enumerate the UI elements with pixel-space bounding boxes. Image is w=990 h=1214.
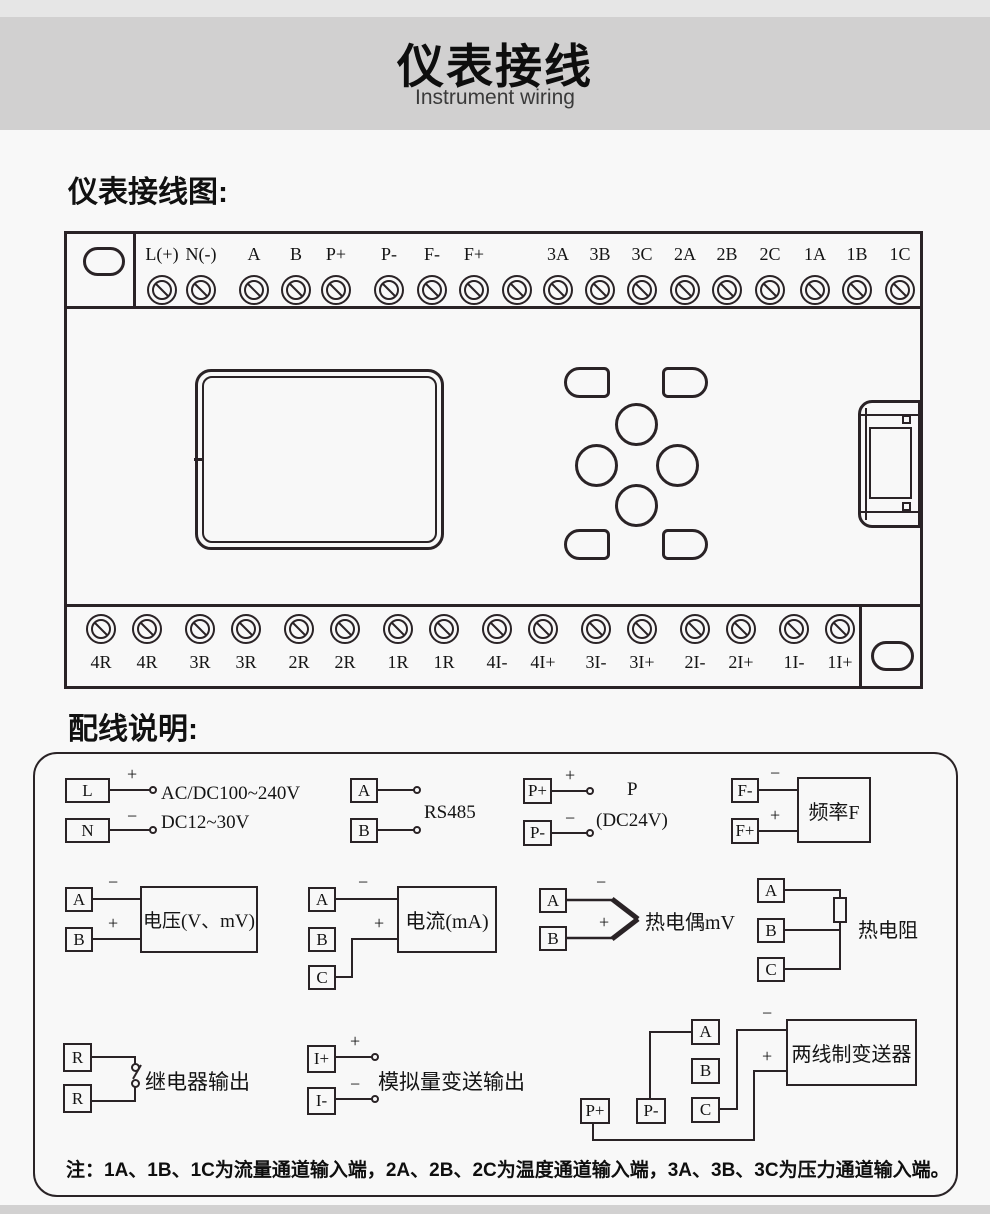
terminal-box-B: B	[539, 926, 567, 951]
wire	[753, 1070, 755, 1141]
screw-terminal-icon	[383, 614, 413, 644]
top-terminal-label: 3C	[631, 244, 652, 265]
keypad-circle-left	[575, 444, 618, 487]
polarity-minus: −	[770, 763, 780, 784]
mount-hole-top-icon	[83, 247, 125, 276]
wire	[378, 829, 416, 831]
wiring-diagram-heading: 仪表接线图:	[68, 167, 228, 211]
top-terminal-label: B	[290, 244, 302, 265]
terminal-box-P-minus: P-	[636, 1098, 666, 1124]
wiring-notes-heading: 配线说明:	[68, 704, 198, 748]
polarity-minus: −	[350, 1074, 360, 1095]
power-range-line1: AC/DC100~240V	[161, 783, 300, 805]
bottom-right-cell-divider	[859, 607, 862, 686]
bottom-terminal-label: 4R	[90, 652, 111, 673]
voltage-box: 电压(V、mV)	[140, 886, 258, 953]
top-terminal-label: 1C	[889, 244, 910, 265]
wire	[649, 1031, 691, 1033]
screw-terminal-icon	[680, 614, 710, 644]
analog-output-label: 模拟量变送输出	[378, 1066, 525, 1096]
screw-terminal-icon	[284, 614, 314, 644]
bottom-terminal-label: 2I-	[685, 652, 706, 673]
screw-terminal-icon	[627, 614, 657, 644]
bottom-terminal-label: 4I+	[530, 652, 555, 673]
screw-terminal-icon	[842, 275, 872, 305]
screw-terminal-icon	[330, 614, 360, 644]
wire-end-dot	[586, 787, 594, 795]
top-terminal-label: P-	[381, 244, 397, 265]
screw-terminal-icon	[459, 275, 489, 305]
polarity-plus: +	[108, 913, 118, 934]
wire	[110, 789, 152, 791]
power-range-line2: DC12~30V	[161, 812, 249, 834]
relay-label: 继电器输出	[145, 1066, 250, 1096]
wire	[336, 1056, 374, 1058]
terminal-box-C: C	[691, 1097, 720, 1123]
screw-terminal-icon	[528, 614, 558, 644]
screw-terminal-icon	[581, 614, 611, 644]
terminal-box-N: N	[65, 818, 110, 843]
screw-terminal-icon	[231, 614, 261, 644]
screw-terminal-icon	[147, 275, 177, 305]
polarity-minus: −	[108, 872, 118, 893]
wire	[351, 938, 353, 978]
screw-terminal-icon	[239, 275, 269, 305]
top-terminal-label: N(-)	[186, 244, 217, 265]
terminal-box-F-plus: F+	[731, 818, 759, 844]
wire-end-dot	[371, 1095, 379, 1103]
screw-terminal-icon	[755, 275, 785, 305]
top-left-cell-divider	[133, 231, 136, 309]
wire	[134, 1087, 136, 1102]
screw-terminal-icon	[482, 614, 512, 644]
wire	[592, 1124, 594, 1141]
keypad-button-top-left	[564, 367, 610, 398]
top-strip-divider-line	[64, 306, 923, 309]
keypad-circle-right	[656, 444, 699, 487]
top-terminal-label: F+	[464, 244, 484, 265]
wire	[336, 1098, 374, 1100]
screw-terminal-icon	[726, 614, 756, 644]
top-terminal-label: L(+)	[145, 244, 178, 265]
screw-terminal-icon	[132, 614, 162, 644]
bottom-terminal-label: 1I-	[784, 652, 805, 673]
wiring-note: 注：1A、1B、1C为流量通道输入端，2A、2B、2C为温度通道输入端，3A、3…	[66, 1155, 946, 1182]
bottom-terminal-label: 2I+	[728, 652, 753, 673]
screw-terminal-icon	[185, 614, 215, 644]
wire	[552, 790, 589, 792]
polarity-plus: +	[374, 913, 384, 934]
screw-terminal-icon	[281, 275, 311, 305]
terminal-box-C: C	[757, 957, 785, 982]
wire	[93, 898, 140, 900]
thermocouple-label: 热电偶mV	[645, 906, 735, 935]
side-connector-tab-top	[902, 415, 911, 424]
wire	[110, 829, 152, 831]
terminal-box-B: B	[308, 927, 336, 952]
wire-end-dot	[413, 826, 421, 834]
keypad-circle-up	[615, 403, 658, 446]
terminal-box-R: R	[63, 1043, 92, 1072]
bottom-terminal-label: 1I+	[827, 652, 852, 673]
terminal-box-A: A	[757, 878, 785, 903]
terminal-box-A: A	[539, 888, 567, 913]
wire	[736, 1029, 738, 1110]
wire	[759, 830, 797, 832]
terminal-box-A: A	[65, 887, 93, 912]
top-terminal-label: 3A	[547, 244, 569, 265]
polarity-plus: +	[565, 765, 575, 786]
side-connector-socket	[869, 427, 912, 499]
polarity-plus: +	[127, 764, 137, 785]
wire	[785, 968, 841, 970]
screw-terminal-icon	[186, 275, 216, 305]
resistor-icon	[833, 897, 847, 923]
bottom-terminal-label: 3R	[189, 652, 210, 673]
bottom-terminal-label: 2R	[334, 652, 355, 673]
bottom-terminal-label: 1R	[433, 652, 454, 673]
polarity-minus: −	[358, 872, 368, 893]
wire-end-dot	[371, 1053, 379, 1061]
polarity-minus: −	[596, 872, 606, 893]
terminal-box-B: B	[350, 818, 378, 843]
mount-hole-bottom-icon	[871, 641, 914, 671]
terminal-box-P-minus: P-	[523, 820, 552, 846]
top-terminal-label: 3B	[589, 244, 610, 265]
p24-line2: (DC24V)	[596, 810, 668, 832]
transmitter-box: 两线制变送器	[786, 1019, 917, 1086]
bottom-terminal-label: 3R	[235, 652, 256, 673]
side-connector-bottom-line	[861, 511, 921, 513]
keypad-circle-down	[615, 484, 658, 527]
terminal-box-F-minus: F-	[731, 778, 759, 803]
wire-end-dot	[413, 786, 421, 794]
p24-line1: P	[627, 779, 638, 801]
top-gray-strip	[0, 0, 990, 17]
screw-terminal-icon	[627, 275, 657, 305]
terminal-box-P-plus: P+	[523, 778, 552, 804]
top-terminal-label: F-	[424, 244, 440, 265]
terminal-box-B: B	[757, 918, 785, 943]
screw-terminal-icon	[779, 614, 809, 644]
current-box: 电流(mA)	[397, 886, 497, 953]
screw-terminal-icon	[885, 275, 915, 305]
wire-end-dot	[149, 786, 157, 794]
polarity-plus: +	[762, 1046, 772, 1067]
screw-terminal-icon	[417, 275, 447, 305]
terminal-box-A: A	[308, 887, 336, 912]
screw-terminal-icon	[712, 275, 742, 305]
bottom-terminal-label: 3I+	[629, 652, 654, 673]
screw-terminal-icon	[543, 275, 573, 305]
top-terminal-label: 1B	[846, 244, 867, 265]
terminal-box-C: C	[308, 965, 336, 990]
display-screen-inner	[202, 376, 437, 543]
bottom-terminal-label: 2R	[288, 652, 309, 673]
top-terminal-label: 2B	[716, 244, 737, 265]
keypad-button-bottom-right	[662, 529, 708, 560]
screw-terminal-icon	[670, 275, 700, 305]
wire	[785, 929, 841, 931]
bottom-terminal-label: 3I-	[586, 652, 607, 673]
instrument-wiring-page: 仪表接线 Instrument wiring 仪表接线图: L(+) N(-) …	[0, 0, 990, 1214]
wire	[649, 1031, 651, 1098]
screw-terminal-icon	[374, 275, 404, 305]
page-subtitle: Instrument wiring	[0, 86, 990, 110]
wire	[336, 898, 397, 900]
display-side-notch	[194, 458, 203, 461]
wire	[351, 938, 397, 940]
wire	[592, 1139, 755, 1141]
terminal-box-P-plus: P+	[580, 1098, 610, 1124]
wire-end-dot	[586, 829, 594, 837]
top-terminal-label: P+	[326, 244, 346, 265]
wire-end-dot	[149, 826, 157, 834]
bottom-gray-strip	[0, 1205, 990, 1214]
screw-terminal-icon	[825, 614, 855, 644]
side-connector-edge-line	[865, 408, 867, 520]
bottom-terminal-label: 1R	[387, 652, 408, 673]
polarity-minus: −	[762, 1003, 772, 1024]
keypad-button-top-right	[662, 367, 708, 398]
wire	[753, 1070, 786, 1072]
top-terminal-label: 1A	[804, 244, 826, 265]
rtd-label: 热电阻	[858, 914, 918, 943]
wire	[92, 1056, 136, 1058]
wire	[378, 789, 416, 791]
screw-terminal-icon	[502, 275, 532, 305]
terminal-box-A: A	[691, 1019, 720, 1045]
keypad-button-bottom-left	[564, 529, 610, 560]
terminal-box-I-minus: I-	[307, 1087, 336, 1115]
wire	[736, 1029, 786, 1031]
polarity-plus: +	[770, 805, 780, 826]
screw-terminal-icon	[429, 614, 459, 644]
polarity-plus: +	[350, 1031, 360, 1052]
screw-terminal-icon	[86, 614, 116, 644]
screw-terminal-icon	[800, 275, 830, 305]
top-terminal-label: 2C	[759, 244, 780, 265]
polarity-minus: −	[565, 808, 575, 829]
wire	[92, 1100, 136, 1102]
wire	[785, 889, 841, 891]
screw-terminal-icon	[321, 275, 351, 305]
wire	[552, 832, 589, 834]
bottom-strip-divider-line	[64, 604, 923, 607]
terminal-box-A: A	[350, 778, 378, 803]
terminal-box-R: R	[63, 1084, 92, 1113]
frequency-box: 频率F	[797, 777, 871, 843]
polarity-minus: −	[127, 806, 137, 827]
terminal-box-I-plus: I+	[307, 1045, 336, 1073]
polarity-plus: +	[599, 912, 609, 933]
top-terminal-label: 2A	[674, 244, 696, 265]
side-connector-tab-bottom	[902, 502, 911, 511]
bottom-terminal-label: 4R	[136, 652, 157, 673]
terminal-box-B: B	[691, 1058, 720, 1084]
rs485-label: RS485	[424, 802, 476, 824]
terminal-box-L: L	[65, 778, 110, 803]
screw-terminal-icon	[585, 275, 615, 305]
top-terminal-label: A	[248, 244, 261, 265]
terminal-box-B: B	[65, 927, 93, 952]
bottom-terminal-label: 4I-	[487, 652, 508, 673]
wire	[93, 938, 140, 940]
wire	[759, 789, 797, 791]
side-connector-top-line	[861, 414, 921, 416]
